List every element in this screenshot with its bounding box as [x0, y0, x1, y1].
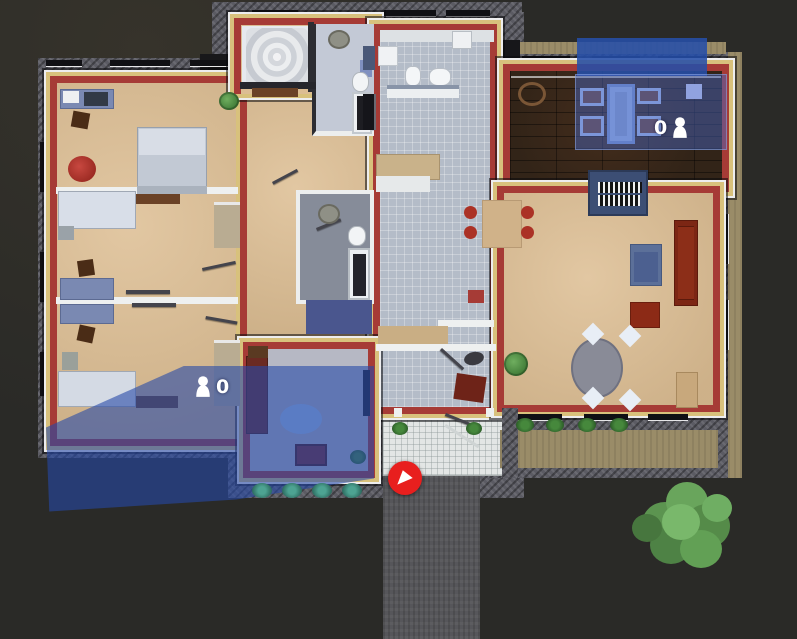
door-jamb [394, 408, 402, 417]
bush [632, 476, 736, 570]
desk [60, 304, 114, 324]
wall-cabinet [363, 46, 375, 70]
upper-zone-overlay[interactable] [577, 38, 707, 76]
nightstand [62, 352, 78, 370]
floorplan-scene: 0 0 [0, 0, 797, 639]
person-icon [194, 375, 212, 399]
couch-end [248, 346, 268, 358]
sofa-cushion [678, 226, 694, 300]
plant [392, 422, 408, 435]
stove [378, 46, 398, 66]
wardrobe [214, 202, 240, 248]
piano-keys [598, 195, 640, 206]
bed-footboard [58, 226, 74, 240]
loveseat-cushion [634, 252, 658, 282]
bed-footboard [137, 186, 207, 194]
plant [312, 483, 332, 498]
small-appliance [405, 66, 421, 86]
window [648, 414, 688, 421]
lower-zone-counter: 0 [194, 375, 229, 399]
potted-plant [504, 352, 528, 376]
piano [588, 170, 648, 216]
window [46, 60, 82, 67]
window [522, 56, 570, 63]
pouf [68, 156, 96, 182]
window [722, 300, 729, 350]
shower-head [318, 204, 340, 224]
window [722, 214, 729, 264]
window [40, 252, 47, 302]
plant [578, 418, 596, 432]
shower-head [328, 30, 350, 49]
dining-chair [464, 226, 477, 239]
ground-strip [728, 52, 742, 478]
kitchen-counter [380, 30, 494, 42]
dining-chair [464, 206, 477, 219]
kitchen-island-counter [376, 176, 430, 192]
round-table [571, 338, 623, 398]
dining-chair [521, 226, 534, 239]
plant [466, 422, 482, 435]
kitchen-bar [387, 85, 459, 98]
entrance-marker[interactable] [388, 461, 422, 495]
plant [252, 483, 272, 498]
ring-rug [518, 82, 546, 106]
entry-mat [453, 373, 486, 403]
desk [60, 278, 114, 300]
armchair [630, 302, 660, 328]
window [446, 10, 490, 17]
upper-zone-overlay[interactable] [575, 74, 727, 150]
toilet [352, 72, 369, 92]
potted-plant [219, 92, 239, 110]
rug [306, 300, 372, 334]
zone-count: 0 [216, 375, 229, 399]
shelf [136, 194, 180, 204]
hall-wall [376, 344, 496, 351]
window [40, 142, 47, 192]
fridge [452, 31, 472, 49]
plant [282, 483, 302, 498]
ground-strip [500, 430, 718, 468]
door-jamb [486, 408, 494, 417]
stool [71, 111, 91, 130]
triangle-arrow-icon [394, 467, 416, 493]
stool [77, 325, 96, 344]
small-appliance [429, 68, 451, 86]
hall-bench [378, 326, 448, 344]
bathroom-bench [252, 88, 298, 97]
window [384, 10, 436, 17]
window [190, 60, 230, 67]
person-icon [671, 116, 689, 140]
plant [546, 418, 564, 432]
hall-wall-stub [468, 290, 484, 303]
plant [610, 418, 628, 432]
dining-chair [521, 206, 534, 219]
door-leaf [132, 303, 176, 307]
bed-pillow [139, 129, 205, 155]
zone-count: 0 [654, 116, 667, 140]
laptop [84, 92, 108, 106]
paper [63, 91, 79, 103]
dining-table [482, 200, 522, 248]
plant [342, 483, 362, 498]
window [252, 10, 298, 17]
bed [58, 191, 136, 229]
window [40, 352, 47, 396]
door-leaf [126, 290, 170, 294]
bathtub-basin [353, 254, 366, 296]
cabinet [676, 372, 698, 408]
piano-keys [598, 182, 642, 193]
upper-zone-counter: 0 [654, 116, 689, 140]
toilet [348, 226, 366, 246]
stool [77, 259, 95, 277]
window [110, 60, 170, 67]
oven [363, 94, 376, 130]
porch-edge [502, 408, 518, 478]
hot-tub [246, 28, 308, 86]
plant [516, 418, 534, 432]
